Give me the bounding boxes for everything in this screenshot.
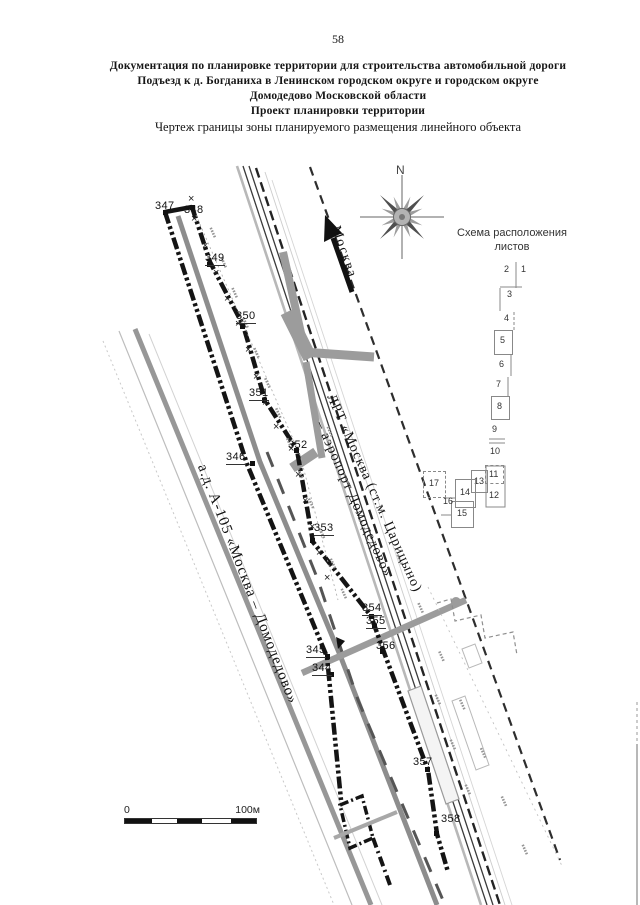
sheet-number: 12 xyxy=(489,491,499,500)
sheet-number: 11 xyxy=(489,470,498,479)
fence-x-mark: × xyxy=(309,522,315,532)
compass-north-label: N xyxy=(396,163,405,177)
map-point-label: 347 xyxy=(155,201,175,212)
map-point-label: 345 xyxy=(306,645,326,658)
sheet-number: 6 xyxy=(499,360,504,369)
sheet-number: 16 xyxy=(443,497,453,506)
map-point-marker xyxy=(434,831,439,836)
document-page: 58 Документация по планировке территории… xyxy=(0,0,640,905)
sheet-number: 1 xyxy=(521,265,526,274)
scale-bar-segments xyxy=(124,818,257,824)
scale-zero-label: 0 xyxy=(124,804,130,816)
fence-x-mark: × xyxy=(316,548,322,558)
map-point-marker xyxy=(250,461,255,466)
map-point-label: 356 xyxy=(376,641,396,652)
fence-x-mark: × xyxy=(324,573,330,583)
sheet-number: 10 xyxy=(490,447,500,456)
sheet-number: 15 xyxy=(457,509,467,518)
road-name-label: а.д. А-105 «Москва – Домодедово» xyxy=(193,462,300,707)
map-point-label: 358 xyxy=(441,814,461,825)
fence-x-mark: × xyxy=(224,294,230,304)
sheet-number: 17 xyxy=(429,479,439,488)
map-point-label: 349 xyxy=(205,253,225,266)
map-point-label: 357 xyxy=(413,757,433,768)
map-overlay: N Москва Схема расположения листов 0 100… xyxy=(0,0,640,905)
fence-x-mark: × xyxy=(273,422,279,432)
fence-x-mark: × xyxy=(213,268,219,278)
sheet-number: 9 xyxy=(492,425,497,434)
fence-x-mark: × xyxy=(191,214,197,224)
fence-x-mark: × xyxy=(302,496,308,506)
map-point-marker xyxy=(310,538,315,543)
sheet-scheme-title: Схема расположения листов xyxy=(432,226,592,254)
scale-end-label: 100м xyxy=(235,804,260,816)
sheet-number: 2 xyxy=(504,265,509,274)
fence-x-mark: × xyxy=(253,372,259,382)
scale-bar: 0 100м xyxy=(124,804,260,828)
map-point-label: 353 xyxy=(314,523,334,536)
fence-x-mark: × xyxy=(288,444,294,454)
sheet-number: 3 xyxy=(507,290,512,299)
fence-x-mark: × xyxy=(245,345,251,355)
map-point-label: 355 xyxy=(366,616,386,629)
sheet-number: 4 xyxy=(504,314,509,323)
moscow-arrow-label: Москва xyxy=(327,224,360,280)
sheet-number: 14 xyxy=(460,488,470,497)
map-point-label: 344 xyxy=(312,663,332,676)
fence-x-mark: × xyxy=(262,398,268,408)
fence-x-mark: × xyxy=(188,194,194,204)
fence-x-mark: × xyxy=(202,241,208,251)
sheet-number: 8 xyxy=(497,402,502,411)
map-point-marker xyxy=(325,654,330,659)
fence-x-mark: × xyxy=(295,470,301,480)
sheet-number: 5 xyxy=(500,336,505,345)
fence-x-mark: × xyxy=(235,319,241,329)
sheet-number: 7 xyxy=(496,380,501,389)
map-point-label: 346 xyxy=(226,452,246,465)
